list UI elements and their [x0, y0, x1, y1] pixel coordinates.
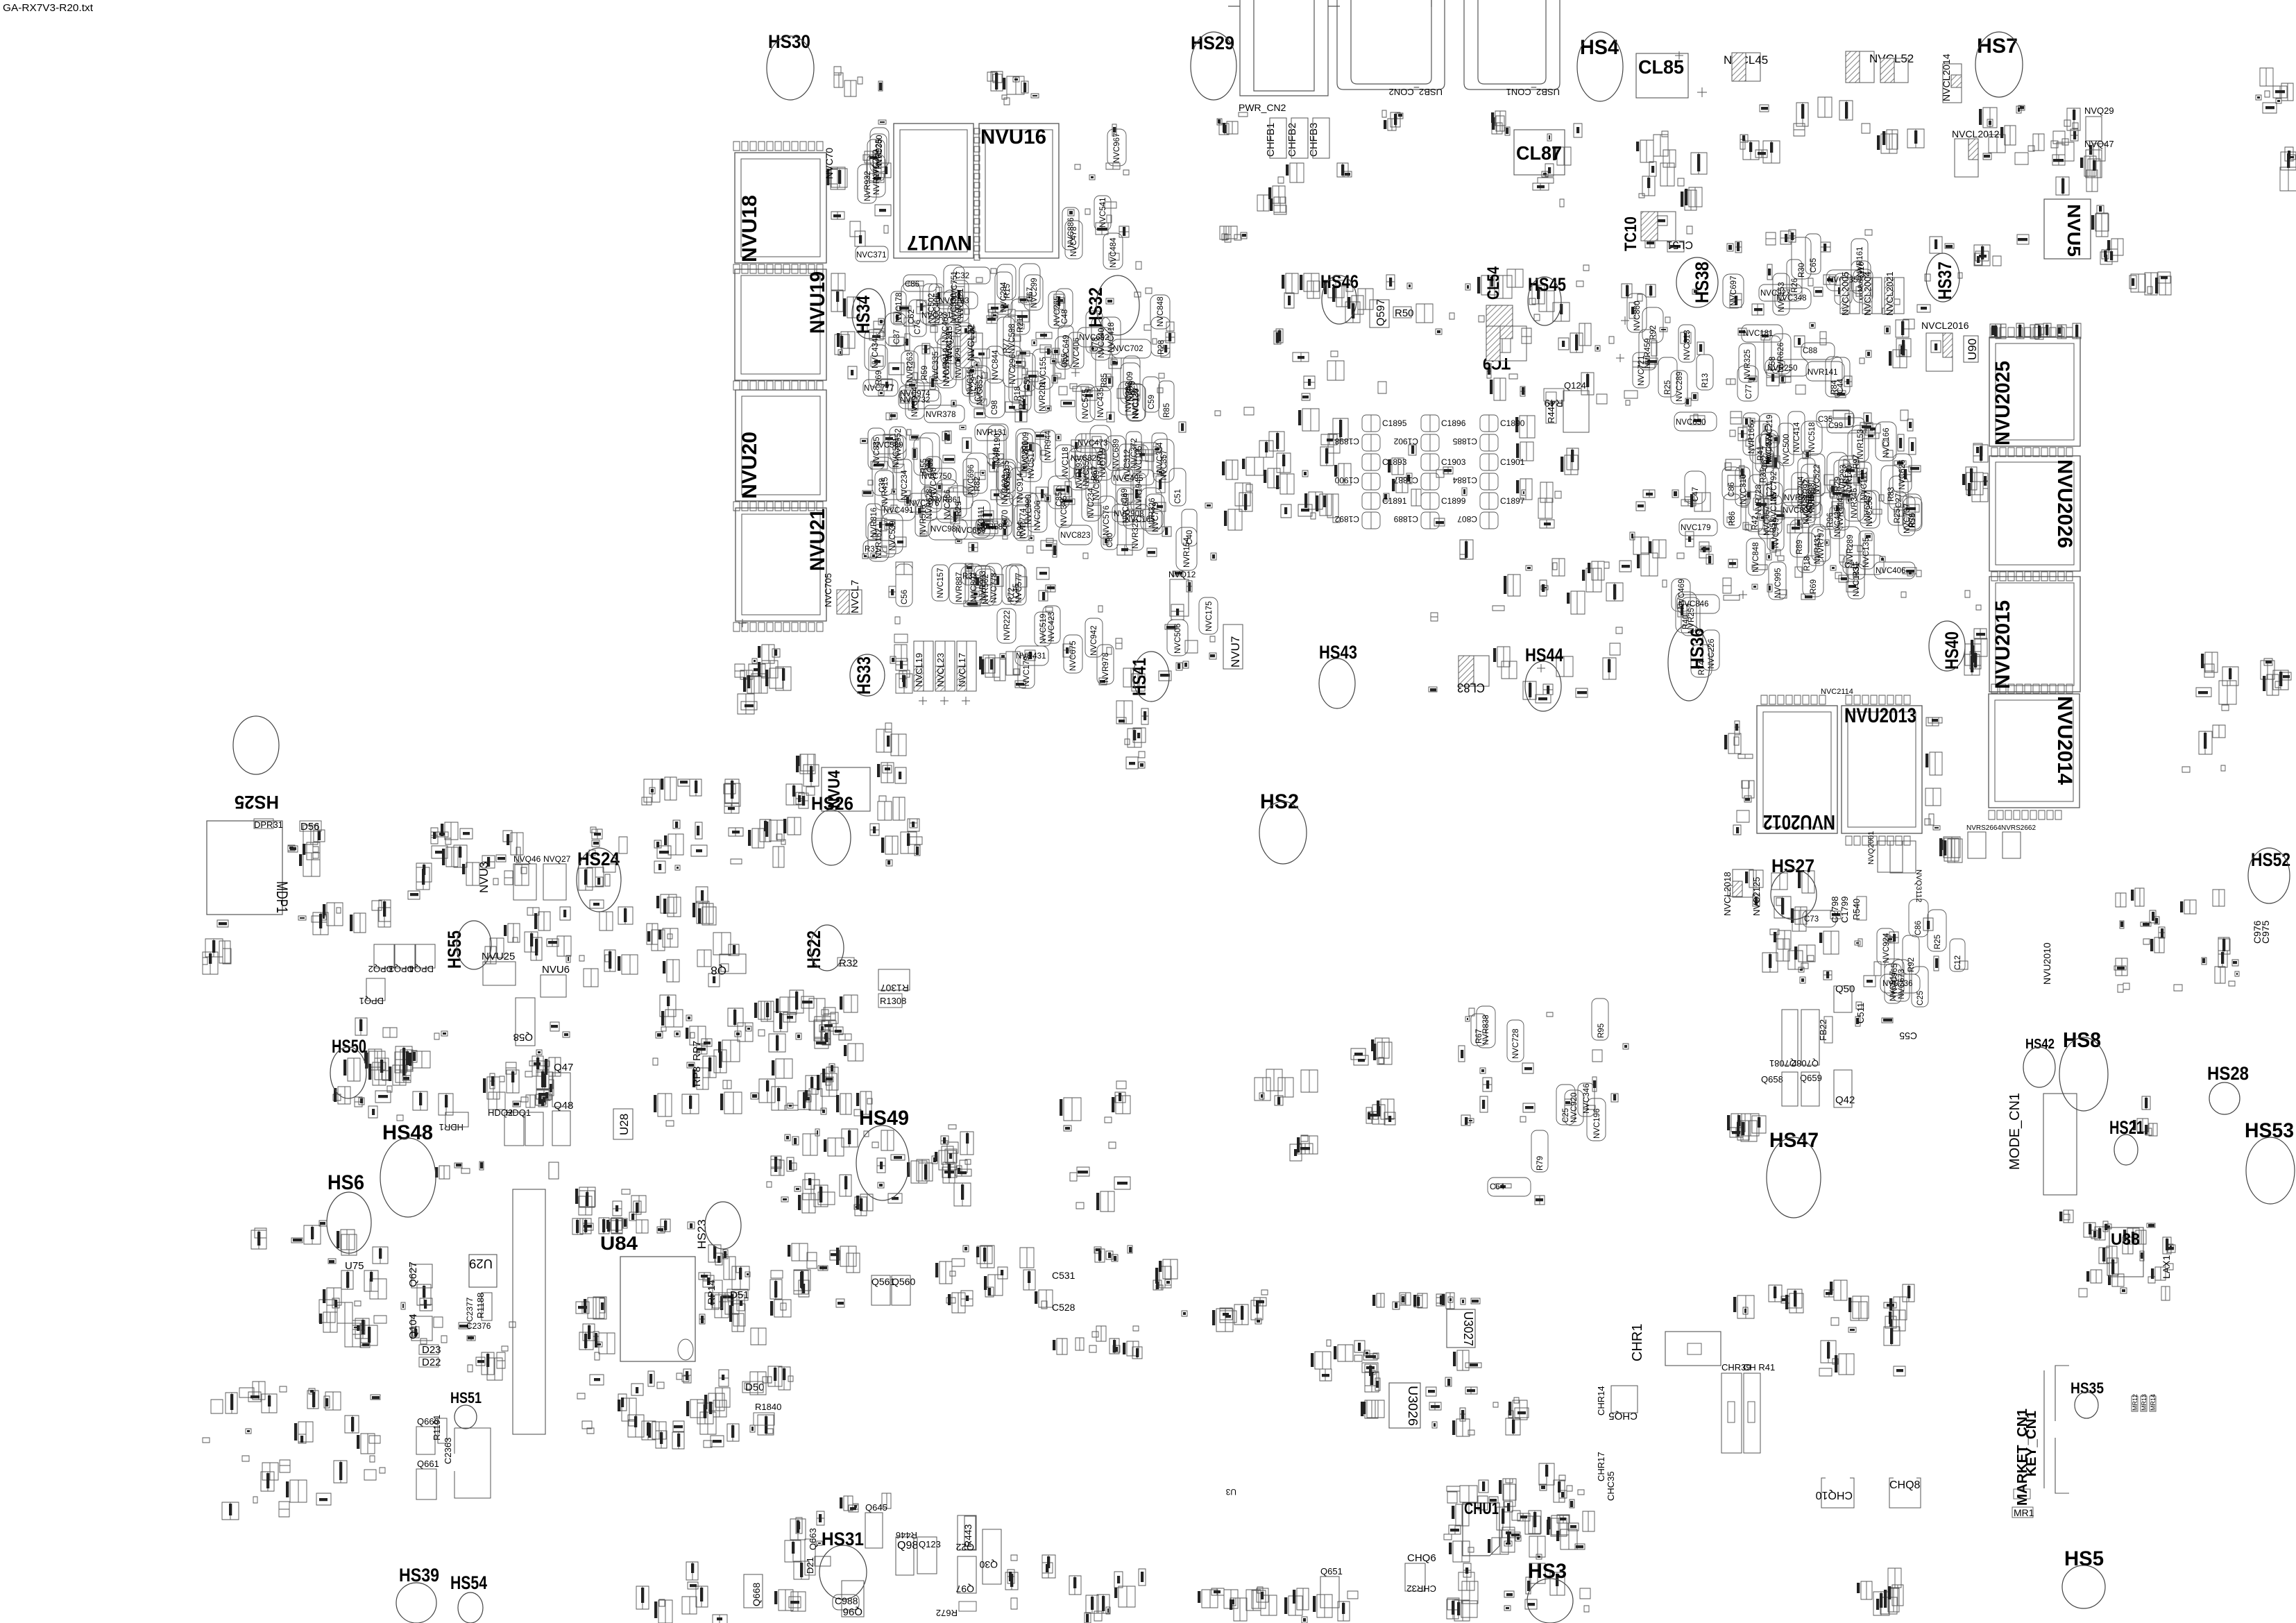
- svg-text:FB22: FB22: [1818, 1019, 1828, 1041]
- svg-text:NVC179: NVC179: [1681, 524, 1710, 532]
- svg-text:Q627: Q627: [407, 1261, 419, 1287]
- svg-text:Q8: Q8: [711, 964, 726, 977]
- svg-text:CHFB1: CHFB1: [1265, 123, 1277, 157]
- svg-text:R446: R446: [896, 1530, 917, 1540]
- svg-text:NVU19: NVU19: [806, 271, 829, 334]
- svg-text:NVR516: NVR516: [919, 505, 928, 535]
- svg-text:NVC927: NVC927: [1760, 289, 1790, 298]
- svg-text:R96: R96: [1826, 513, 1835, 527]
- svg-text:C32: C32: [955, 272, 969, 280]
- svg-text:NVC473: NVC473: [1078, 439, 1107, 448]
- svg-text:R92: R92: [1907, 958, 1916, 972]
- svg-text:NVC371: NVC371: [856, 251, 886, 260]
- svg-text:CHR1: CHR1: [1630, 1324, 1645, 1361]
- svg-text:C73: C73: [1804, 915, 1819, 924]
- svg-text:NVC196: NVC196: [1593, 1109, 1601, 1139]
- svg-text:NVR978: NVR978: [1102, 653, 1110, 683]
- svg-text:NVC155: NVC155: [967, 365, 975, 395]
- svg-text:R25: R25: [1664, 380, 1672, 395]
- svg-text:NVU3: NVU3: [477, 862, 491, 893]
- svg-text:R95: R95: [1597, 1023, 1606, 1038]
- svg-text:NVC673: NVC673: [1898, 969, 1906, 999]
- svg-text:NVC732: NVC732: [900, 396, 930, 405]
- svg-text:HS51: HS51: [450, 1389, 482, 1407]
- svg-text:CHFB2: CHFB2: [1286, 123, 1298, 157]
- svg-text:C12: C12: [1954, 955, 1962, 970]
- svg-text:NVR222: NVR222: [1003, 611, 1012, 640]
- svg-text:NVU2012: NVU2012: [1763, 810, 1835, 833]
- svg-text:Q651: Q651: [1320, 1566, 1343, 1577]
- svg-text:NVCL2012: NVCL2012: [1952, 128, 2000, 139]
- svg-text:NVC541: NVC541: [1099, 198, 1107, 228]
- svg-text:Q47: Q47: [554, 1062, 573, 1073]
- svg-text:LAX1: LAX1: [2161, 1255, 2172, 1279]
- svg-text:Q658: Q658: [1761, 1074, 1783, 1085]
- svg-text:NVC166: NVC166: [1882, 428, 1891, 458]
- svg-text:CHQ8: CHQ8: [1889, 1479, 1921, 1491]
- svg-text:NVU2010: NVU2010: [2041, 942, 2052, 985]
- svg-text:R18: R18: [1803, 556, 1812, 571]
- svg-text:NVC763: NVC763: [939, 297, 969, 305]
- svg-text:Q30: Q30: [979, 1559, 998, 1570]
- svg-text:C85: C85: [1055, 492, 1064, 507]
- svg-text:D56: D56: [300, 821, 320, 833]
- svg-text:NVU5: NVU5: [2064, 204, 2084, 257]
- svg-text:C1885: C1885: [1452, 436, 1477, 446]
- svg-text:HS42: HS42: [2025, 1037, 2055, 1052]
- svg-text:C2376: C2376: [466, 1321, 491, 1331]
- svg-text:Q645: Q645: [865, 1502, 887, 1513]
- svg-text:HS6: HS6: [328, 1171, 364, 1194]
- svg-text:CL54: CL54: [1484, 266, 1503, 300]
- svg-text:NVC334: NVC334: [1156, 442, 1164, 473]
- svg-text:R29: R29: [1834, 477, 1842, 491]
- svg-text:NVC545: NVC545: [1082, 389, 1090, 419]
- svg-text:NVC705: NVC705: [823, 573, 833, 607]
- svg-text:NVC352: NVC352: [1082, 457, 1091, 486]
- svg-text:HS53: HS53: [2245, 1119, 2294, 1142]
- svg-text:NVC623: NVC623: [1001, 475, 1010, 504]
- svg-text:NVC256: NVC256: [1866, 497, 1874, 527]
- svg-text:NVC139: NVC139: [1132, 389, 1141, 418]
- svg-text:NVRS2664: NVRS2664: [1966, 824, 2001, 832]
- svg-text:C25: C25: [1916, 991, 1925, 1005]
- svg-text:C35: C35: [1818, 416, 1832, 424]
- svg-text:NVR887: NVR887: [955, 572, 964, 602]
- svg-text:R41: R41: [1757, 446, 1765, 461]
- svg-text:NVU17: NVU17: [907, 231, 972, 254]
- svg-text:NVC823: NVC823: [1060, 532, 1090, 540]
- svg-text:C976: C976: [2252, 920, 2263, 944]
- svg-text:NVQ29: NVQ29: [2084, 105, 2114, 116]
- svg-text:NVQ3112: NVQ3112: [1914, 869, 1923, 903]
- svg-text:NVR263: NVR263: [906, 352, 915, 382]
- svg-text:R94: R94: [1017, 521, 1025, 536]
- svg-text:NVC518: NVC518: [1808, 423, 1817, 452]
- svg-text:R50: R50: [1395, 307, 1414, 319]
- svg-text:KEY_CN1: KEY_CN1: [2024, 1411, 2039, 1477]
- svg-text:NVCL22: NVCL22: [965, 324, 976, 361]
- svg-text:C77: C77: [1745, 384, 1753, 399]
- svg-text:NVC296: NVC296: [1009, 355, 1017, 384]
- svg-text:R69: R69: [1810, 579, 1818, 594]
- svg-text:C1891: C1891: [1382, 496, 1407, 506]
- svg-text:NVCL2018: NVCL2018: [1722, 872, 1733, 916]
- svg-text:NVC435: NVC435: [1097, 388, 1105, 418]
- svg-text:MR13: MR13: [2141, 1394, 2148, 1411]
- svg-text:NVR944: NVR944: [1044, 430, 1053, 461]
- svg-text:NVC995: NVC995: [1774, 568, 1783, 598]
- svg-text:C1893: C1893: [1382, 457, 1407, 467]
- svg-text:C64: C64: [1490, 1183, 1505, 1191]
- svg-text:R30: R30: [1798, 263, 1806, 278]
- svg-text:Q659: Q659: [1800, 1073, 1822, 1083]
- svg-text:NVRS2662: NVRS2662: [2001, 824, 2036, 832]
- svg-text:NVC500: NVC500: [1783, 434, 1791, 464]
- svg-text:C1898: C1898: [1334, 436, 1359, 446]
- svg-text:MODE_CN1: MODE_CN1: [2007, 1093, 2023, 1170]
- svg-text:HS34: HS34: [853, 296, 874, 334]
- svg-text:NVQ46: NVQ46: [513, 854, 541, 864]
- svg-text:NVC360: NVC360: [876, 135, 884, 165]
- svg-text:U38: U38: [2111, 1230, 2140, 1249]
- svg-text:C807: C807: [1457, 514, 1477, 524]
- svg-text:R67: R67: [1091, 466, 1099, 481]
- svg-text:NVU2015: NVU2015: [1991, 600, 2014, 689]
- svg-text:NVC848: NVC848: [1752, 543, 1760, 572]
- svg-text:NVCL7: NVCL7: [849, 580, 861, 613]
- svg-text:HS22: HS22: [803, 931, 824, 969]
- svg-text:C1902: C1902: [1393, 436, 1418, 446]
- svg-text:NVR166: NVR166: [1748, 424, 1756, 454]
- svg-text:NVR194: NVR194: [1135, 479, 1143, 509]
- svg-text:NVCL23: NVCL23: [935, 653, 946, 687]
- svg-text:NVCL19: NVCL19: [914, 653, 924, 687]
- svg-text:C1799: C1799: [1839, 897, 1850, 923]
- svg-text:C1889: C1889: [1393, 514, 1418, 524]
- svg-text:Q123: Q123: [919, 1539, 941, 1549]
- svg-text:NVC181: NVC181: [1743, 330, 1773, 338]
- svg-text:C51: C51: [1174, 489, 1182, 504]
- svg-text:R1840: R1840: [755, 1402, 781, 1412]
- svg-text:R77: R77: [1003, 339, 1011, 353]
- svg-text:CL85: CL85: [1638, 56, 1684, 78]
- svg-text:HS28: HS28: [2207, 1063, 2249, 1084]
- svg-text:HS29: HS29: [1191, 33, 1234, 53]
- svg-text:NVC406: NVC406: [1876, 567, 1905, 575]
- svg-text:NVCL17: NVCL17: [957, 653, 967, 687]
- svg-text:U3027: U3027: [1461, 1311, 1475, 1346]
- svg-text:D51: D51: [730, 1289, 749, 1301]
- svg-text:PWR_CN2: PWR_CN2: [1239, 102, 1286, 113]
- svg-text:R540: R540: [1851, 899, 1862, 920]
- svg-text:NVR140: NVR140: [1846, 466, 1854, 495]
- svg-text:U29: U29: [469, 1257, 493, 1271]
- svg-text:RP8: RP8: [691, 1067, 703, 1087]
- svg-text:NVQ27: NVQ27: [543, 854, 571, 864]
- svg-text:D21: D21: [805, 1557, 815, 1574]
- svg-text:NVR190: NVR190: [955, 305, 963, 334]
- svg-text:R31: R31: [1760, 468, 1768, 483]
- svg-text:CHFB3: CHFB3: [1308, 123, 1320, 157]
- svg-text:D23: D23: [422, 1344, 441, 1356]
- svg-text:R69: R69: [875, 371, 883, 385]
- svg-text:NVC844: NVC844: [992, 350, 1000, 380]
- svg-text:NVC155: NVC155: [1039, 357, 1048, 387]
- svg-text:NVC135: NVC135: [1862, 538, 1871, 568]
- svg-text:HS7: HS7: [1977, 35, 2018, 58]
- svg-text:NVC650: NVC650: [1676, 418, 1706, 427]
- svg-text:CHQ6: CHQ6: [1407, 1552, 1436, 1564]
- svg-text:HS33: HS33: [853, 656, 874, 695]
- svg-text:TC10: TC10: [1622, 216, 1640, 251]
- svg-text:NVC702: NVC702: [1113, 345, 1143, 353]
- svg-text:NVC111: NVC111: [978, 506, 986, 535]
- svg-text:Q663: Q663: [808, 1528, 818, 1550]
- svg-text:NVC848: NVC848: [1157, 297, 1165, 327]
- svg-text:R85: R85: [1100, 373, 1109, 388]
- svg-text:NVC778: NVC778: [990, 573, 998, 603]
- svg-text:HS35: HS35: [2070, 1379, 2104, 1397]
- svg-text:CHR14: CHR14: [1596, 1386, 1606, 1416]
- svg-text:C48: C48: [992, 448, 1001, 462]
- svg-text:NVC689: NVC689: [1112, 439, 1121, 469]
- svg-text:C2363: C2363: [443, 1438, 453, 1464]
- svg-text:NVU20: NVU20: [738, 432, 761, 499]
- svg-text:R83: R83: [1887, 487, 1896, 502]
- svg-text:HS27: HS27: [1771, 856, 1814, 876]
- svg-text:CL87: CL87: [1516, 142, 1562, 164]
- svg-text:C86: C86: [1914, 921, 1923, 935]
- svg-text:NVC696: NVC696: [967, 465, 976, 495]
- svg-text:HS25: HS25: [235, 792, 279, 813]
- svg-text:R59: R59: [921, 366, 929, 380]
- svg-text:HS43: HS43: [1319, 642, 1357, 663]
- svg-text:NVC179: NVC179: [1023, 656, 1031, 686]
- svg-text:Q104: Q104: [407, 1314, 419, 1339]
- svg-text:NVCL2016: NVCL2016: [1921, 320, 1969, 331]
- svg-text:NVU2026: NVU2026: [2053, 459, 2076, 548]
- svg-text:C1890: C1890: [1500, 418, 1525, 428]
- svg-text:R28: R28: [1157, 340, 1166, 355]
- svg-text:HS48: HS48: [382, 1121, 433, 1144]
- svg-text:HS46: HS46: [1320, 271, 1359, 292]
- svg-text:HS54: HS54: [450, 1572, 487, 1593]
- svg-text:NVC990: NVC990: [1025, 495, 1033, 525]
- svg-text:HS50: HS50: [332, 1036, 366, 1057]
- svg-text:HS47: HS47: [1769, 1129, 1819, 1152]
- svg-text:NVC942: NVC942: [1090, 626, 1098, 656]
- svg-text:CHC35: CHC35: [1606, 1471, 1616, 1501]
- svg-text:R89: R89: [1796, 540, 1804, 554]
- svg-text:C48: C48: [1061, 309, 1069, 324]
- svg-text:CHQ10: CHQ10: [1816, 1489, 1853, 1501]
- svg-text:C1798: C1798: [1830, 897, 1840, 923]
- svg-text:C27: C27: [1895, 493, 1903, 508]
- svg-text:MR14: MR14: [2150, 1394, 2157, 1411]
- svg-text:NVR162: NVR162: [875, 529, 883, 559]
- svg-text:NVR431: NVR431: [1814, 534, 1822, 564]
- svg-text:R444: R444: [1546, 402, 1556, 423]
- svg-text:CL83: CL83: [1457, 681, 1485, 695]
- svg-text:C76: C76: [914, 320, 922, 334]
- svg-text:NVC478: NVC478: [1070, 227, 1078, 257]
- svg-text:R26: R26: [1791, 278, 1799, 293]
- svg-text:C988: C988: [835, 1595, 858, 1606]
- svg-text:C1900: C1900: [1334, 475, 1359, 485]
- svg-text:NVC967: NVC967: [1113, 133, 1121, 163]
- svg-text:NVQ2001: NVQ2001: [1867, 831, 1876, 865]
- svg-text:NVC2125: NVC2125: [1751, 877, 1762, 916]
- svg-text:NVC340: NVC340: [1098, 328, 1106, 358]
- svg-text:R1307: R1307: [881, 983, 909, 994]
- svg-text:Q560: Q560: [892, 1276, 915, 1287]
- svg-text:NVC626: NVC626: [1898, 460, 1907, 490]
- svg-text:C47: C47: [1692, 487, 1700, 502]
- svg-text:HS8: HS8: [2063, 1028, 2101, 1052]
- svg-text:NVR562: NVR562: [982, 575, 990, 604]
- svg-text:NVU16: NVU16: [980, 126, 1046, 148]
- svg-text:NVR323: NVR323: [1132, 519, 1140, 549]
- svg-text:NVC418: NVC418: [1107, 323, 1116, 352]
- svg-text:C37: C37: [893, 330, 901, 344]
- svg-text:R1188: R1188: [475, 1293, 486, 1318]
- svg-text:R85: R85: [1163, 403, 1171, 418]
- svg-text:NVC952: NVC952: [894, 429, 903, 459]
- svg-text:NVC219: NVC219: [1766, 415, 1774, 445]
- svg-text:NVC175: NVC175: [1205, 602, 1214, 631]
- svg-text:D22: D22: [422, 1357, 441, 1368]
- svg-text:HS38: HS38: [1692, 262, 1712, 303]
- svg-text:C86: C86: [905, 280, 919, 289]
- svg-text:C70: C70: [1001, 510, 1010, 525]
- svg-text:NVC987: NVC987: [930, 525, 960, 534]
- svg-text:C1887: C1887: [1393, 475, 1418, 485]
- svg-text:NVU18: NVU18: [738, 195, 761, 262]
- svg-text:R86: R86: [1728, 511, 1737, 526]
- svg-text:NVCL2021: NVCL2021: [1885, 271, 1895, 316]
- svg-text:RP7: RP7: [691, 1041, 703, 1061]
- svg-text:R25: R25: [1934, 935, 1942, 949]
- svg-text:NVR431: NVR431: [1016, 652, 1046, 661]
- svg-text:U75: U75: [345, 1260, 364, 1272]
- svg-text:NVC779: NVC779: [1152, 502, 1160, 532]
- svg-text:U84: U84: [600, 1232, 638, 1254]
- svg-text:NVU7: NVU7: [1229, 636, 1242, 668]
- svg-text:NVC896: NVC896: [1021, 441, 1030, 471]
- svg-text:NVC697: NVC697: [1730, 276, 1738, 306]
- svg-text:Q22: Q22: [955, 1542, 974, 1553]
- svg-text:R1308: R1308: [880, 996, 906, 1006]
- svg-text:NVCL2004: NVCL2004: [1862, 271, 1873, 316]
- svg-text:NVC860: NVC860: [1633, 301, 1642, 331]
- svg-text:R92: R92: [1649, 325, 1658, 340]
- svg-text:Q661: Q661: [417, 1459, 439, 1469]
- svg-text:NVU6: NVU6: [542, 964, 570, 976]
- svg-text:NVC294: NVC294: [1000, 282, 1008, 312]
- svg-text:C511: C511: [1855, 1003, 1866, 1023]
- svg-text:DPQ4: DPQ4: [409, 964, 434, 974]
- svg-text:C25: C25: [1562, 1108, 1570, 1123]
- svg-text:NVR275: NVR275: [873, 165, 881, 195]
- svg-text:NVC2114: NVC2114: [1821, 688, 1853, 696]
- svg-text:NVC315: NVC315: [944, 325, 954, 357]
- svg-text:C69: C69: [1121, 488, 1129, 503]
- svg-text:Q124: Q124: [1564, 380, 1586, 391]
- svg-text:NVR289: NVR289: [1846, 535, 1855, 565]
- svg-text:C531: C531: [1052, 1270, 1075, 1281]
- svg-text:NVC675: NVC675: [1069, 641, 1078, 671]
- svg-text:NVC896: NVC896: [1783, 507, 1812, 515]
- svg-text:NVC234: NVC234: [901, 470, 909, 500]
- svg-text:C1884: C1884: [1452, 475, 1477, 485]
- svg-text:NVC835: NVC835: [873, 437, 881, 467]
- svg-text:Q98: Q98: [897, 1540, 918, 1552]
- svg-text:NVC721: NVC721: [1638, 356, 1646, 386]
- svg-text:NVCL2005: NVCL2005: [1840, 271, 1851, 316]
- svg-text:NVC118: NVC118: [1062, 447, 1070, 477]
- svg-text:NVC576: NVC576: [1103, 506, 1111, 536]
- svg-text:NVC335: NVC335: [932, 352, 940, 382]
- svg-text:C1892: C1892: [1334, 514, 1359, 524]
- svg-text:NVC914: NVC914: [1017, 473, 1025, 503]
- svg-text:HS5: HS5: [2064, 1547, 2104, 1570]
- svg-text:NVU2025: NVU2025: [1991, 361, 2014, 445]
- svg-text:NVC484: NVC484: [1109, 237, 1118, 268]
- svg-text:NVC425: NVC425: [1834, 507, 1842, 537]
- svg-text:R79: R79: [1536, 1156, 1545, 1171]
- svg-text:MDP1: MDP1: [273, 881, 291, 913]
- svg-text:NVC289: NVC289: [1676, 372, 1684, 402]
- svg-text:NVCL2014: NVCL2014: [1941, 53, 1952, 101]
- svg-text:U3: U3: [1225, 1487, 1236, 1497]
- svg-text:NVR154: NVR154: [1183, 537, 1191, 568]
- svg-text:NVC813: NVC813: [1683, 330, 1692, 360]
- svg-text:NVC178: NVC178: [895, 293, 903, 323]
- svg-text:NVU4: NVU4: [825, 770, 844, 808]
- svg-text:CHR17: CHR17: [1596, 1452, 1606, 1481]
- svg-text:C98: C98: [991, 400, 999, 415]
- svg-text:NVC135: NVC135: [1770, 493, 1778, 522]
- svg-text:CHU1: CHU1: [1464, 1499, 1499, 1518]
- svg-text:NVR378: NVR378: [926, 411, 955, 419]
- svg-text:NVC846: NVC846: [1678, 600, 1708, 609]
- svg-text:HS39: HS39: [399, 1565, 439, 1586]
- svg-text:NVC70: NVC70: [824, 148, 835, 179]
- svg-text:HS24: HS24: [577, 849, 620, 869]
- svg-text:MR1: MR1: [2014, 1507, 2034, 1518]
- svg-text:HS32: HS32: [1085, 287, 1106, 328]
- svg-text:NVC299: NVC299: [1030, 278, 1039, 308]
- svg-text:HS52: HS52: [2251, 849, 2290, 870]
- svg-text:NVC704: NVC704: [1797, 476, 1805, 507]
- svg-text:Q668: Q668: [751, 1583, 762, 1606]
- svg-text:R40: R40: [1682, 615, 1690, 629]
- svg-text:C56: C56: [901, 590, 909, 604]
- svg-text:R42: R42: [1751, 516, 1760, 530]
- svg-text:NVC206: NVC206: [1034, 501, 1042, 531]
- svg-text:R67: R67: [1475, 1029, 1483, 1044]
- svg-text:CH R41: CH R41: [1743, 1362, 1775, 1373]
- svg-text:NVC111: NVC111: [1860, 471, 1869, 500]
- svg-text:R70: R70: [1097, 451, 1105, 466]
- svg-text:CL51: CL51: [1667, 239, 1693, 250]
- svg-text:R13: R13: [1701, 373, 1710, 388]
- svg-text:HS31: HS31: [822, 1529, 864, 1549]
- svg-text:R21: R21: [1017, 318, 1025, 332]
- svg-text:NVC346: NVC346: [1583, 1084, 1591, 1114]
- svg-text:C1895: C1895: [1382, 418, 1407, 428]
